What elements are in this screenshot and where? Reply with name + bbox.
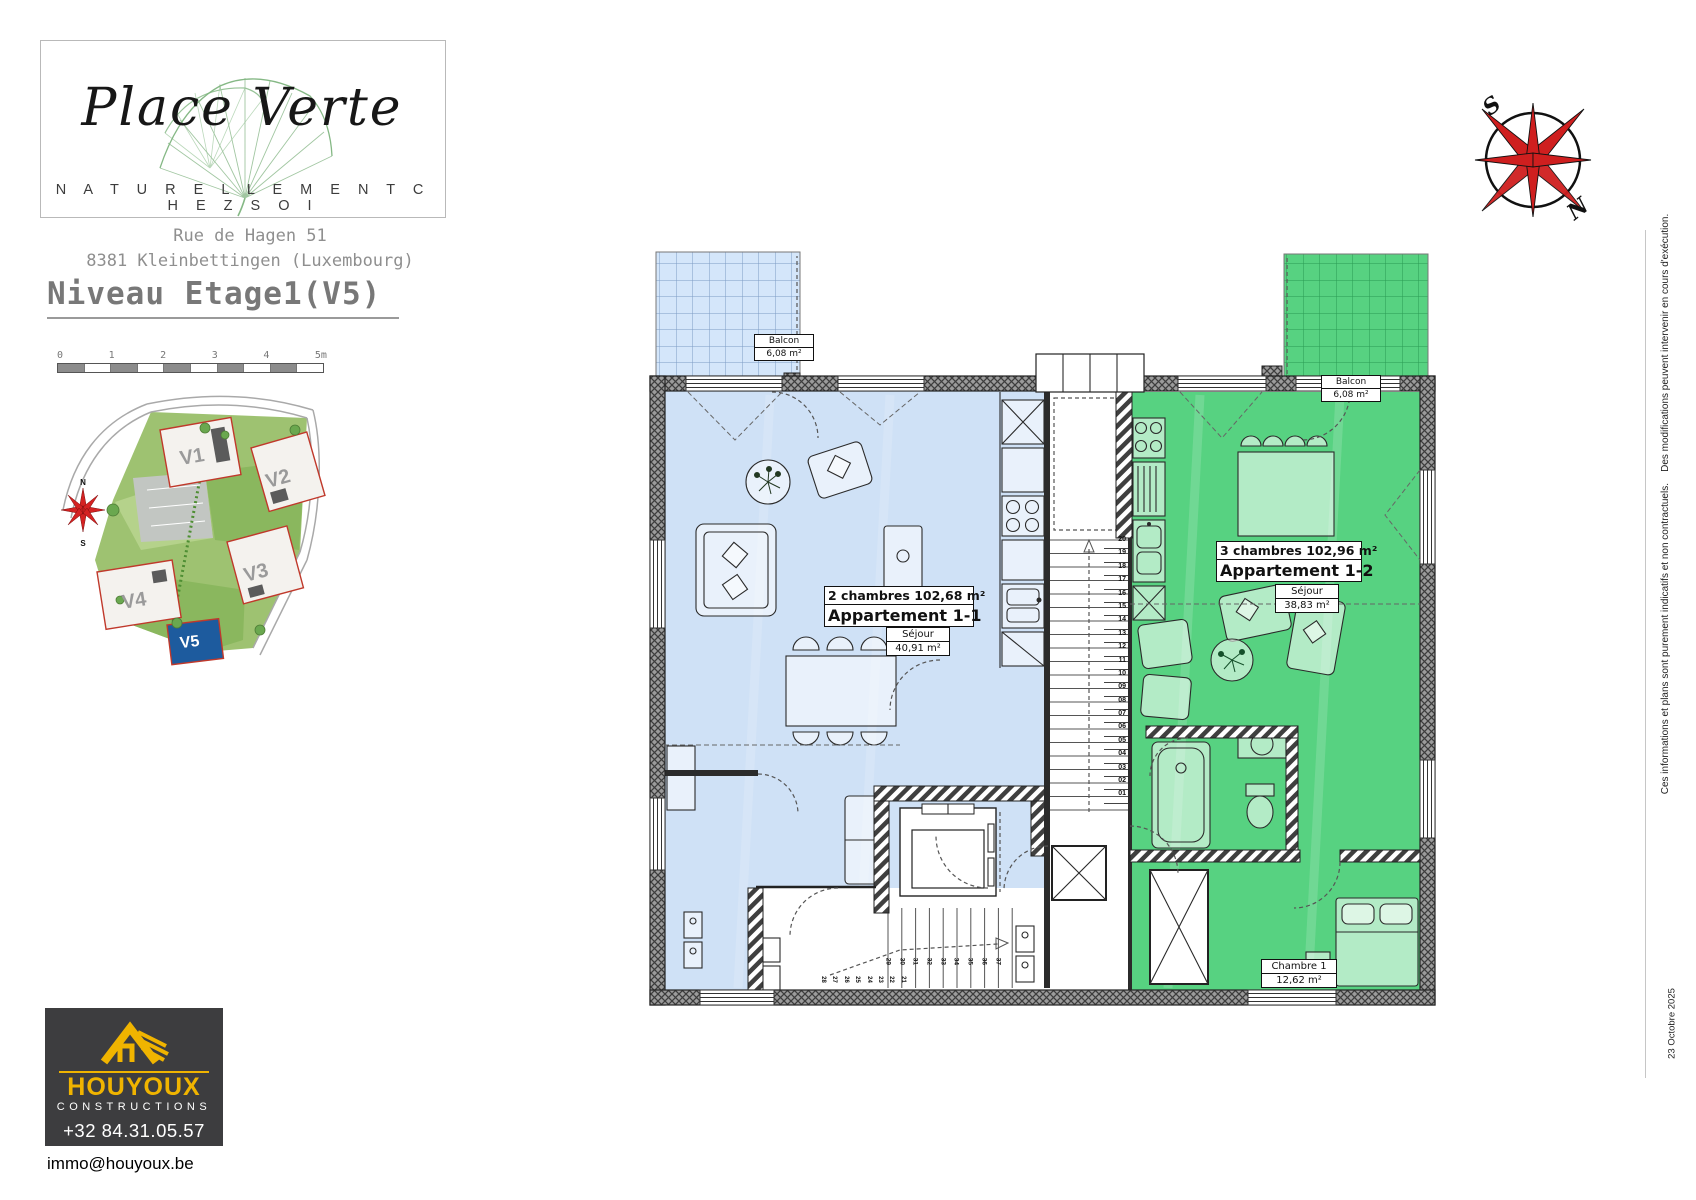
balcony-1-2 [1262, 254, 1428, 391]
builder-phone: +32 84.31.05.57 [63, 1120, 205, 1142]
balcony-1-1 [656, 252, 800, 389]
scale-tick-label: 4 [263, 350, 269, 361]
stair-number: 19 [1104, 549, 1128, 562]
stair-number: 20 [1104, 536, 1128, 549]
builder-logo-block: HOUYOUX CONSTRUCTIONS +32 84.31.05.57 [45, 1008, 223, 1146]
stair-number: 36 [980, 958, 987, 966]
stair-number: 29 [884, 958, 891, 966]
sejour-1-1-label: Séjour 40,91 m² [886, 627, 950, 656]
site-building-v4: V4 [120, 588, 148, 615]
project-tagline: N A T U R E L L E M E N T C H E Z S O I [48, 182, 438, 214]
site-building-v1: V1 [178, 444, 206, 471]
stair-number: 24 [865, 976, 871, 982]
frame-line [1645, 230, 1646, 1078]
stair-number: 33 [939, 958, 946, 966]
balcon-1-2-label: Balcon 6,08 m² [1321, 375, 1381, 402]
plan-sheet: Place Verte N A T U R E L L E M E N T C … [0, 0, 1696, 1200]
stair-number: 11 [1104, 657, 1128, 670]
disclaimer-text: Ces informations et plans sont purement … [1660, 174, 1676, 834]
site-compass-icon: N S [61, 478, 105, 548]
stair-number: 28 [820, 976, 826, 982]
address-line1: Rue de Hagen 51 [40, 224, 460, 249]
stair-number: 12 [1104, 643, 1128, 656]
scale-bar [57, 363, 324, 373]
balcon-1-1-label: Balcon 6,08 m² [754, 334, 814, 361]
stair-number: 01 [1104, 790, 1128, 803]
stair-number: 30 [898, 958, 905, 966]
svg-text:S: S [80, 539, 86, 548]
stair-number: 04 [1104, 750, 1128, 763]
stair-number: 17 [1104, 576, 1128, 589]
stair-number: 27 [831, 976, 837, 982]
stair-number: 18 [1104, 563, 1128, 576]
sheet-title: Niveau Etage1(V5) [47, 276, 381, 312]
plan-date: 23 Octobre 2025 [1667, 982, 1678, 1066]
stair-number: 16 [1104, 590, 1128, 603]
builder-name: HOUYOUX [67, 1075, 200, 1099]
stair-number: 03 [1104, 764, 1128, 777]
scale-tick-label: 0 [57, 350, 63, 361]
scale-tick-label: 1 [109, 350, 115, 361]
lower-run-stair-numbers: 2827262524232221 [820, 976, 906, 982]
apartment-1-2-label: 3 chambres 102,96 m² Appartement 1-2 [1216, 541, 1362, 582]
svg-text:N: N [80, 478, 86, 487]
stair-number: 32 [925, 958, 932, 966]
address-line2: 8381 Kleinbettingen (Luxembourg) [40, 249, 460, 274]
scale-tick-label: 3 [212, 350, 218, 361]
stair-number: 06 [1104, 723, 1128, 736]
stair-number: 02 [1104, 777, 1128, 790]
stair-number: 26 [843, 976, 849, 982]
chambre-1-label: Chambre 1 12,62 m² [1261, 959, 1337, 988]
title-rule [47, 317, 399, 319]
scale-tick-label: 2 [160, 350, 166, 361]
stair-number: 31 [912, 958, 919, 966]
scale-tick-label: 5m [315, 350, 327, 361]
builder-subtitle: CONSTRUCTIONS [57, 1101, 211, 1113]
stair-number: 09 [1104, 683, 1128, 696]
sejour-1-2-label: Séjour 38,83 m² [1275, 584, 1339, 613]
stair-number: 22 [888, 976, 894, 982]
stair-number: 25 [854, 976, 860, 982]
stair-number: 35 [966, 958, 973, 966]
stair-number: 15 [1104, 603, 1128, 616]
stair-number: 21 [900, 976, 906, 982]
stair-number: 07 [1104, 710, 1128, 723]
builder-email[interactable]: immo@houyoux.be [47, 1154, 194, 1174]
stair-number: 08 [1104, 697, 1128, 710]
project-title: Place Verte [40, 78, 444, 138]
upper-run-stair-numbers: 293031323334353637 [884, 958, 1001, 965]
builder-house-icon [74, 1016, 194, 1068]
stair-number: 34 [953, 958, 960, 966]
site-plan: N S [55, 390, 330, 670]
stair-number: 05 [1104, 737, 1128, 750]
stair-number: 37 [994, 958, 1001, 966]
stair-number: 10 [1104, 670, 1128, 683]
stair-number: 13 [1104, 630, 1128, 643]
scale-labels: 012345m [57, 350, 327, 361]
site-building-v5: V5 [179, 633, 201, 653]
stair-number: 23 [877, 976, 883, 982]
corridor-stair-numbers: 2019181716151413121110090807060504030201 [1104, 536, 1128, 804]
apartment-1-1-label: 2 chambres 102,68 m² Appartement 1-1 [824, 586, 974, 627]
stair-number: 14 [1104, 616, 1128, 629]
